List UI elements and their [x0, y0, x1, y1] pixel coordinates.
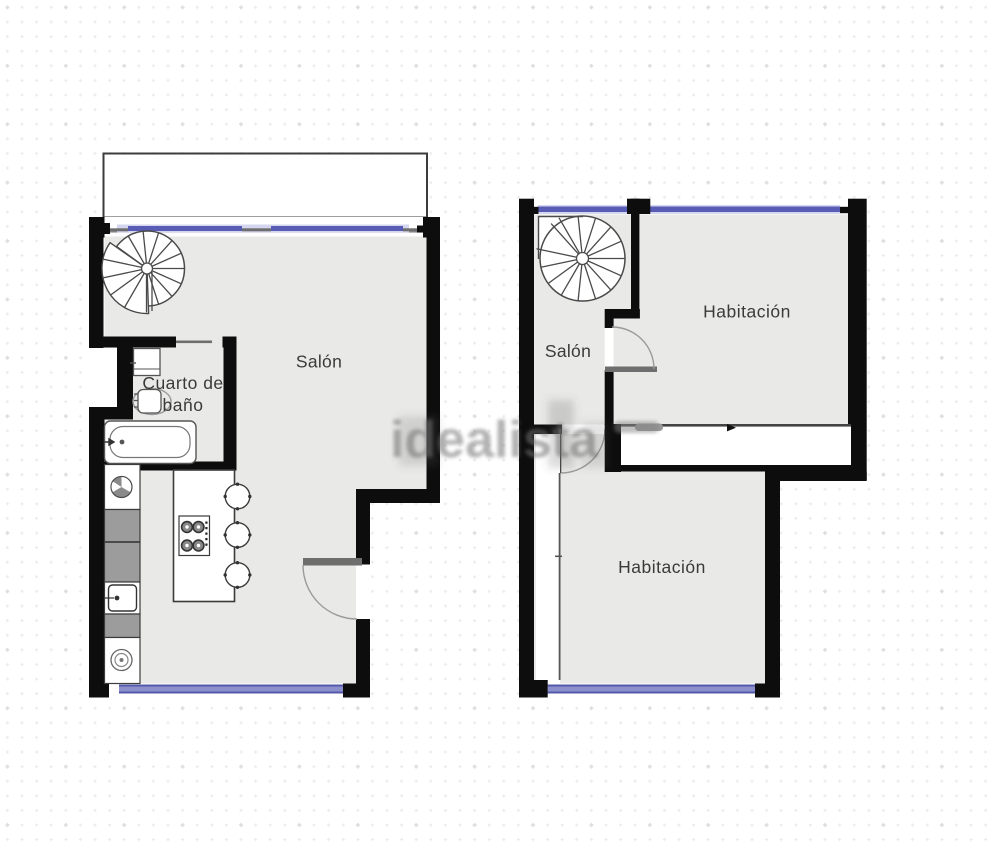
svg-text:Salón: Salón: [296, 352, 342, 372]
svg-text:Habitación: Habitación: [618, 557, 706, 577]
svg-text:Cuarto de: Cuarto de: [142, 373, 223, 393]
svg-text:Salón: Salón: [545, 341, 591, 361]
svg-text:baño: baño: [163, 395, 204, 415]
svg-text:Habitación: Habitación: [703, 302, 791, 322]
